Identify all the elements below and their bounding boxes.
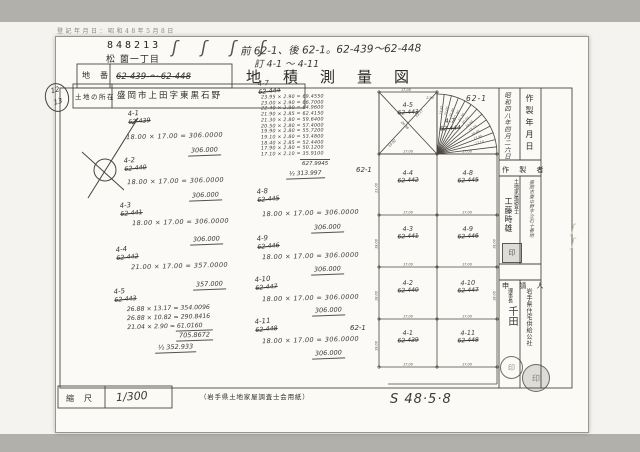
registration-note: 登記年月日：昭和48年5月8日 xyxy=(57,26,176,35)
parcel-label: 4-10 62-447 xyxy=(446,279,491,295)
diagonal-measure: 10.82 xyxy=(387,138,397,148)
calc-multiline: 26.88 × 13.17 = 354.0096 26.88 × 10.82 =… xyxy=(127,303,211,332)
preparer-name: 工藤時雄 xyxy=(503,197,514,233)
edge-measure: 18.00 xyxy=(375,341,379,351)
fan-calc-lines: 23.95 × 2.90 = 69.4550 23.00 × 2.90 = 66… xyxy=(261,95,324,158)
ray-measure: 17.10 xyxy=(475,140,485,146)
corner-seal-stamp: 印 xyxy=(522,364,550,392)
edge-measure: 17.00 xyxy=(462,315,472,319)
applicant-organization: 岩手県住宅供給公社 xyxy=(524,288,533,347)
edge-measure: 17.00 xyxy=(401,88,411,92)
edge-measure: 18.00 xyxy=(493,239,497,249)
parcel-label: 4-7 62-444 xyxy=(430,117,471,133)
calc-header: 4-8 62-445 xyxy=(256,187,280,204)
margin-scribble: ʃʃ xyxy=(566,222,580,250)
edge-measure: 18.00 xyxy=(375,239,379,249)
edge-measure: 21.00 xyxy=(375,183,379,193)
parcel-label: 4-8 62-445 xyxy=(446,169,491,185)
document-number: 848213 xyxy=(107,40,161,51)
diagonal-measure: 2.90 xyxy=(426,96,434,100)
parcel-label: 4-3 62-441 xyxy=(386,225,431,241)
calc-result: 306.000 xyxy=(312,348,345,359)
applicant-name: 千田 xyxy=(504,306,519,326)
neighbor-lot-label: 62-1 xyxy=(350,324,366,332)
scanned-survey-document: { "header": { "reg_note": "登記年月日：昭和48年5月… xyxy=(0,0,640,452)
edge-measure: 17.00 xyxy=(403,315,413,319)
calc-half: ½ 352.933 xyxy=(155,342,197,353)
page-number-bottom: 13 xyxy=(53,97,64,107)
scale-value: 1/300 xyxy=(116,389,149,404)
applicant-title: 理事長 xyxy=(507,288,514,303)
calc-result: 357.000 xyxy=(193,279,226,290)
scale-label: 縮尺 xyxy=(66,393,102,404)
calc-header: 4-7 62-444 xyxy=(257,79,281,96)
lot-number-label: 地番 xyxy=(82,70,118,81)
calc-result: 306.000 xyxy=(311,264,344,275)
edge-measure: 17.00 xyxy=(462,363,472,367)
lot-number-value: 62-439-〜-62-448 xyxy=(116,70,191,82)
preparer-label: 作 製 者 xyxy=(502,165,547,175)
edge-measure: 17.00 xyxy=(462,211,472,215)
parcel-label: 4-2 62-440 xyxy=(386,279,431,295)
parcel-label: 4-4 62-442 xyxy=(386,169,431,185)
calc-header: 4-3 62-441 xyxy=(119,201,143,218)
edge-measure: 17.00 xyxy=(462,263,472,267)
edge-measure: 18.00 xyxy=(493,291,497,301)
calc-header: 4-1 62-439 xyxy=(127,109,151,126)
scan-band-top xyxy=(0,0,640,22)
preparer-title: 土地家屋調査士 xyxy=(513,179,520,214)
preparer-address: 盛岡市東中野字立石十番地 xyxy=(527,180,534,238)
seal-glyph: 印 xyxy=(532,373,540,384)
edge-measure: 17.00 xyxy=(403,211,413,215)
neighbor-lot-label: 62-1 xyxy=(466,94,487,103)
calc-header: 4-5 62-443 xyxy=(113,287,137,304)
edge-measure: 17.00 xyxy=(462,150,472,154)
land-location-value: 盛岡市上田字東黒石野 xyxy=(117,89,222,101)
calc-result: 306.000 xyxy=(312,305,345,316)
parcel-label: 4-9 62-446 xyxy=(446,225,491,241)
seal-glyph: 印 xyxy=(508,363,515,373)
page-number-top: 12 xyxy=(50,85,61,95)
calc-header: 4-11 62-448 xyxy=(254,317,278,334)
calc-header: 4-4 62-442 xyxy=(115,245,139,262)
prepared-date-value: 昭和四八年四月二六日 xyxy=(502,92,511,160)
calc-line: 17.10 × 2.10 = 35.9100 xyxy=(261,151,324,158)
paper-source-note: （岩手県土地家屋調査士会用紙） xyxy=(200,391,310,401)
calc-result: 306.000 xyxy=(189,190,222,201)
calc-header: 4-10 62-447 xyxy=(254,275,278,292)
calc-result: 306.000 xyxy=(190,234,223,245)
edge-measure: 17.00 xyxy=(403,150,413,154)
handwritten-date: S 48·5·8 xyxy=(390,392,452,407)
edge-measure: 17.00 xyxy=(403,263,413,267)
parcel-label: 4-5 62-443 xyxy=(388,101,429,117)
land-location-label: 土地の所在 xyxy=(75,91,115,101)
town-name: 松 薗一丁目 xyxy=(106,52,160,65)
calc-header: 4-9 62-446 xyxy=(256,234,280,251)
preparer-seal-stamp: 印 xyxy=(502,243,522,263)
fan-total: 627.9945 xyxy=(300,159,330,168)
edge-measure: 17.00 xyxy=(403,363,413,367)
calc-total: 705.8672 xyxy=(176,329,213,341)
applicant-seal-stamp: 印 xyxy=(500,356,523,379)
calc-result: 306.000 xyxy=(188,145,221,156)
prepared-date-label: 作製年月日 xyxy=(524,94,535,154)
neighbor-lot-label: 62-1 xyxy=(356,166,372,174)
parcel-label: 4-11 62-448 xyxy=(446,329,491,345)
parcel-label: 4-1 62-439 xyxy=(386,329,431,345)
calc-header: 4-2 62-440 xyxy=(123,156,147,173)
seal-glyph: 印 xyxy=(509,248,516,258)
calc-result: 306.000 xyxy=(311,222,344,233)
fan-half: ½ 313.997 xyxy=(286,169,325,179)
scan-band-bottom xyxy=(0,434,640,452)
edge-measure: 18.00 xyxy=(375,291,379,301)
